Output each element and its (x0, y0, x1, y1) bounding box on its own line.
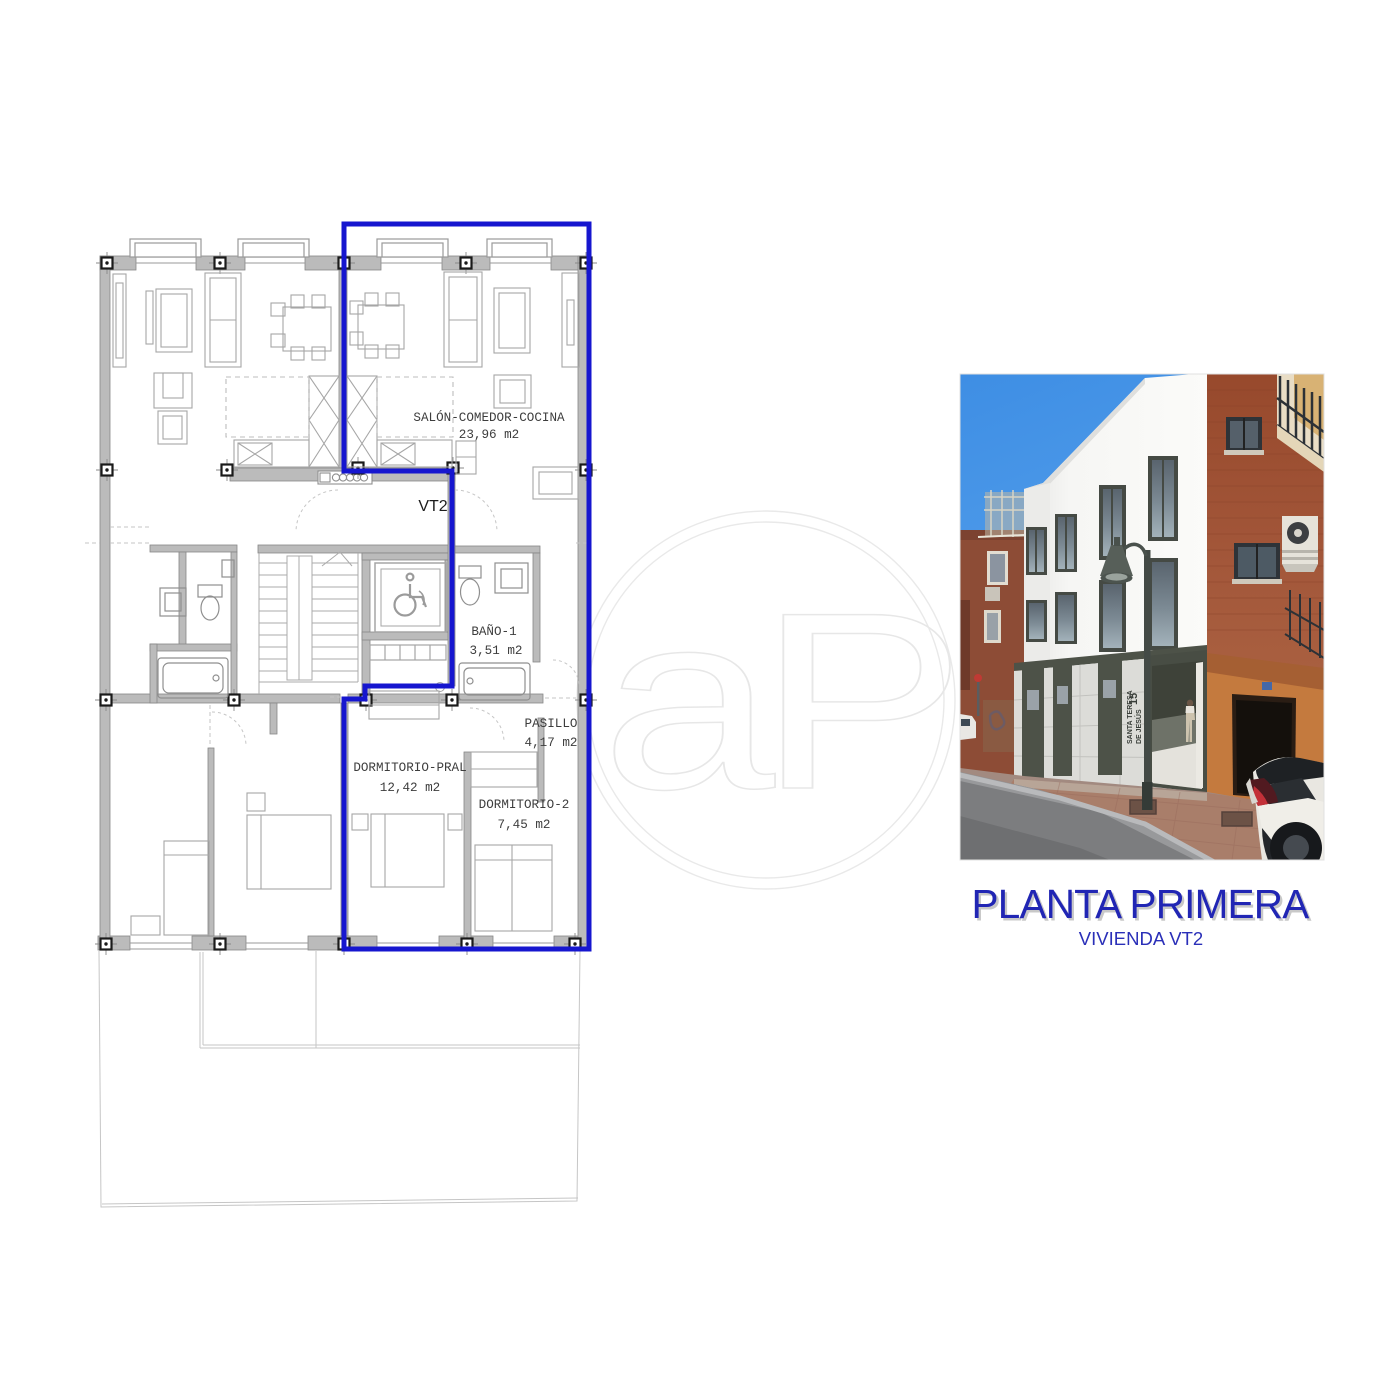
svg-text:VIVIENDA VT2: VIVIENDA VT2 (1079, 928, 1203, 949)
svg-text:aP: aP (601, 561, 950, 842)
svg-text:PLANTA PRIMERA: PLANTA PRIMERA (972, 881, 1310, 927)
svg-text:DE JESÚS: DE JESÚS (1134, 709, 1143, 744)
svg-text:VT2: VT2 (418, 498, 447, 515)
svg-text:SALÓN-COMEDOR-COCINA: SALÓN-COMEDOR-COCINA (413, 410, 565, 425)
svg-text:12,42 m2: 12,42 m2 (380, 781, 440, 795)
svg-text:DORMITORIO-PRAL: DORMITORIO-PRAL (353, 761, 466, 775)
svg-text:3,51 m2: 3,51 m2 (470, 644, 523, 658)
svg-text:PASILLO: PASILLO (525, 717, 578, 731)
svg-text:7,45 m2: 7,45 m2 (498, 818, 551, 832)
svg-text:BAÑO-1: BAÑO-1 (471, 624, 516, 639)
svg-text:DORMITORIO-2: DORMITORIO-2 (479, 798, 570, 812)
svg-text:15: 15 (1128, 693, 1140, 705)
svg-text:23,96 m2: 23,96 m2 (459, 428, 519, 442)
svg-text:4,17 m2: 4,17 m2 (525, 736, 578, 750)
